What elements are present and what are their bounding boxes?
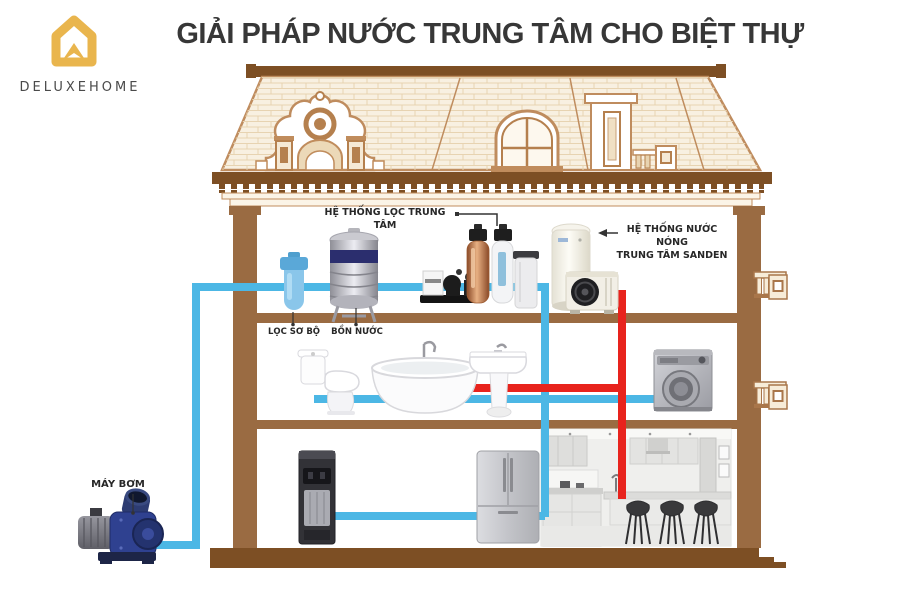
pre-filter-icon <box>280 252 308 310</box>
label-hot-water-line2: TRUNG TÂM SANDEN <box>610 250 734 263</box>
water-tank-icon <box>330 228 378 322</box>
bathtub-icon <box>372 342 478 413</box>
pedestal-sink-icon <box>470 345 527 417</box>
label-central-hot-water-system: HỆ THỐNG NƯỚC NÓNG TRUNG TÂM SANDEN <box>610 224 734 262</box>
range-hood <box>648 438 668 451</box>
label-hot-water-line1: HỆ THỐNG NƯỚC NÓNG <box>610 224 734 250</box>
roof-ridge <box>250 66 722 77</box>
water-dispenser-icon <box>299 451 335 544</box>
wall-frame <box>719 464 729 477</box>
label-water-tank: BỒN NƯỚC <box>329 327 385 338</box>
cornice-bar <box>212 172 772 184</box>
heat-pump-unit-icon <box>566 272 618 314</box>
hot-water-arrowhead <box>598 229 607 237</box>
deluxehome-logo-icon <box>56 20 92 62</box>
floor-slab-upper <box>257 313 737 323</box>
balcony-lower <box>754 382 787 409</box>
filter-column-copper-icon <box>467 224 489 303</box>
page-title: GIẢI PHÁP NƯỚC TRUNG TÂM CHO BIỆT THỰ <box>158 15 822 54</box>
label-central-filter-system: HỆ THỐNG LỌC TRUNG TÂM <box>314 207 456 233</box>
kitchen-scene <box>541 429 731 546</box>
roof-group <box>222 64 760 172</box>
sink-faucet <box>497 345 506 348</box>
brine-tank-icon <box>513 251 539 308</box>
refrigerator-icon <box>477 451 539 543</box>
foundation-base <box>210 548 759 568</box>
wall-frame <box>719 446 729 459</box>
cornice-group <box>212 172 772 206</box>
washing-machine-icon <box>654 350 712 411</box>
toilet-icon <box>298 350 359 415</box>
label-pump: MÁY BƠM <box>86 478 150 492</box>
logo-text: DELUXEHOME <box>10 79 150 97</box>
label-pre-filter: LỌC SƠ BỘ <box>266 327 322 338</box>
balcony-upper <box>754 272 787 299</box>
center-dormer-window <box>491 111 563 172</box>
right-wall <box>737 206 761 548</box>
left-wall <box>233 206 257 548</box>
water-pump-icon <box>78 488 163 564</box>
entry-step <box>759 557 774 568</box>
floor-slab-lower <box>257 420 737 429</box>
filter-column-white-icon <box>492 224 513 303</box>
entry-step <box>774 562 786 568</box>
infographic-canvas: GIẢI PHÁP NƯỚC TRUNG TÂM CHO BIỆT THỰ DE… <box>0 0 900 600</box>
dentil-molding <box>218 184 764 193</box>
